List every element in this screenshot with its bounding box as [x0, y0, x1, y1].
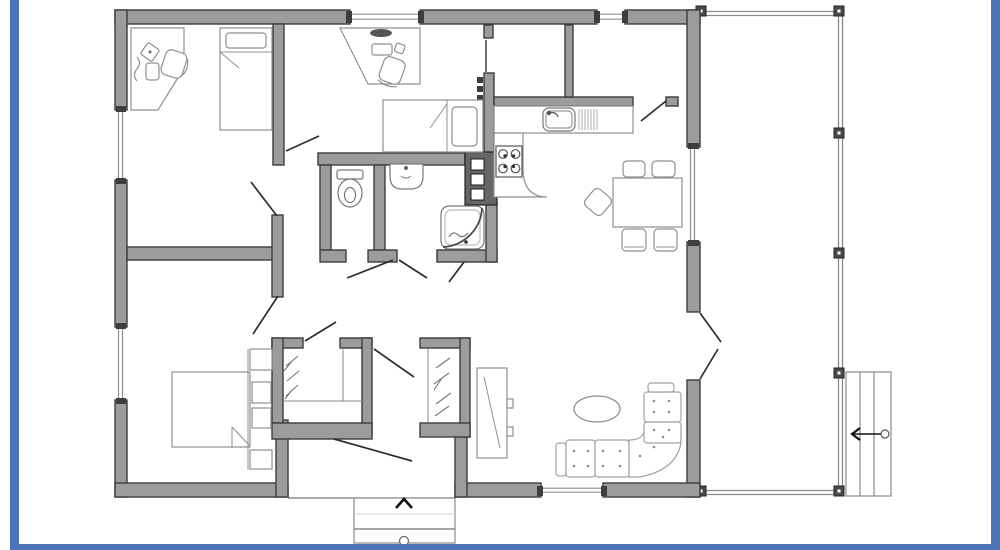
living-room-furniture: [477, 368, 681, 477]
deck-stairs: [846, 372, 891, 496]
bedroom3-furniture: [172, 349, 272, 470]
sofa-cushion: [644, 392, 681, 422]
frame-right: [991, 0, 1000, 550]
dining-table: [613, 178, 682, 227]
window-top-bedroom2: [350, 14, 420, 19]
wall-t-cap: [272, 215, 283, 297]
stove: [496, 146, 522, 177]
monitor-icon: [370, 29, 392, 37]
dining-chair: [622, 229, 646, 251]
dining-chair: [623, 161, 645, 177]
stairs-arrow-start: [881, 430, 889, 438]
window-right-dining: [691, 147, 695, 242]
window-bottom-living: [541, 488, 603, 492]
deck: [703, 11, 843, 495]
floor-plan-canvas: [0, 0, 1000, 550]
wash-basin: [390, 164, 423, 189]
wall-wc-bath: [374, 165, 385, 250]
wall-kitchen-top: [494, 97, 633, 106]
wall-right: [687, 10, 700, 147]
heater-panel: [471, 174, 484, 185]
bedroom1-furniture: [131, 28, 272, 130]
corner-shower: [441, 206, 484, 249]
door-bedroom1: [251, 182, 277, 216]
hinge-notch: [477, 86, 483, 92]
door-bedroom2: [286, 136, 319, 151]
wall-left: [115, 180, 127, 327]
heater-panel: [471, 189, 484, 200]
toilet-tank: [337, 170, 363, 179]
sofa-armrest: [648, 383, 674, 392]
wall-bed1-bed2: [273, 24, 284, 165]
water-heater: [465, 152, 497, 205]
kitchen-sink: [543, 108, 575, 131]
wall-bottom: [115, 483, 288, 497]
wall-closet-divider: [362, 338, 372, 435]
door-shower: [449, 262, 464, 282]
coffee-table: [574, 396, 620, 422]
door-bedroom3: [253, 296, 278, 334]
wall-bed2-right: [484, 73, 494, 153]
door-entry: [334, 439, 412, 461]
wall-left: [115, 10, 127, 110]
keyboard-icon: [146, 63, 159, 80]
storage-cube: [250, 450, 272, 469]
wall-pantry-stub: [666, 97, 678, 106]
drainer-icon: [579, 109, 597, 130]
hinge-notch: [477, 77, 483, 83]
corner-sofa: [556, 383, 681, 477]
storage-cube: [250, 349, 272, 370]
bathroom-fixtures: [337, 164, 484, 249]
shower-handle: [464, 240, 468, 244]
door-patio-leaf: [700, 349, 718, 379]
sofa-cushion: [566, 440, 595, 477]
door-pantry: [641, 101, 666, 121]
keyboard-icon: [372, 44, 392, 55]
sofa-cushion: [644, 422, 681, 443]
door-closet-left: [305, 322, 336, 341]
deck-posts: [696, 6, 844, 496]
hangers-icon: [434, 358, 451, 416]
dining-set: [583, 161, 682, 251]
faucet-icon: [404, 166, 408, 170]
wall-notches: [477, 77, 483, 101]
storage-cube: [252, 382, 271, 403]
single-bed: [220, 28, 272, 130]
toilet: [337, 170, 363, 207]
sofa-cushion: [595, 440, 629, 477]
hangers-icon: [284, 356, 299, 399]
frame-left: [10, 0, 19, 550]
tv-cabinet: [477, 368, 513, 458]
wall-wc-foot: [320, 250, 346, 262]
window-top-pantry: [597, 14, 625, 19]
wall-shower-right: [486, 203, 497, 262]
wall-bath-top: [318, 153, 465, 165]
wall-closet-bottom: [272, 423, 372, 439]
bedroom2-furniture: [340, 28, 483, 152]
door-bathroom: [399, 260, 427, 278]
window-left-bedroom3: [119, 327, 123, 400]
wall-closet2-bottom: [420, 423, 470, 437]
frame-bottom: [10, 544, 1000, 550]
heater-panel: [471, 159, 484, 170]
sofa-armrest: [556, 443, 566, 476]
wall-wc-left: [320, 165, 331, 250]
entry-steps: [288, 498, 455, 546]
wall-hall-living: [455, 433, 467, 497]
wall-pantry-divider: [565, 25, 573, 97]
pillow: [452, 107, 477, 146]
wall-bottom: [603, 483, 700, 497]
wall-closet2-right: [460, 338, 470, 437]
wall-top: [420, 10, 597, 24]
double-bed: [172, 372, 250, 447]
door-patio-leaf: [700, 313, 721, 342]
dining-chair: [583, 187, 614, 218]
wall-bed2-right: [484, 25, 493, 38]
dining-chair: [654, 229, 677, 251]
floor-plan-page: [0, 0, 1000, 550]
single-bed: [383, 100, 483, 152]
door-wc: [347, 260, 393, 278]
wall-bottom: [455, 483, 541, 497]
dining-chair: [652, 161, 675, 177]
kitchen: [494, 106, 633, 197]
pillow: [226, 33, 266, 48]
wall-right: [687, 380, 700, 497]
storage-cube: [252, 408, 271, 428]
wall-top: [115, 10, 350, 24]
wall-right: [687, 242, 700, 312]
door-closet-right: [374, 349, 414, 377]
wall-closet-left: [272, 338, 283, 423]
window-left-bedroom1: [119, 110, 123, 180]
wall-t-horizontal: [127, 247, 278, 260]
